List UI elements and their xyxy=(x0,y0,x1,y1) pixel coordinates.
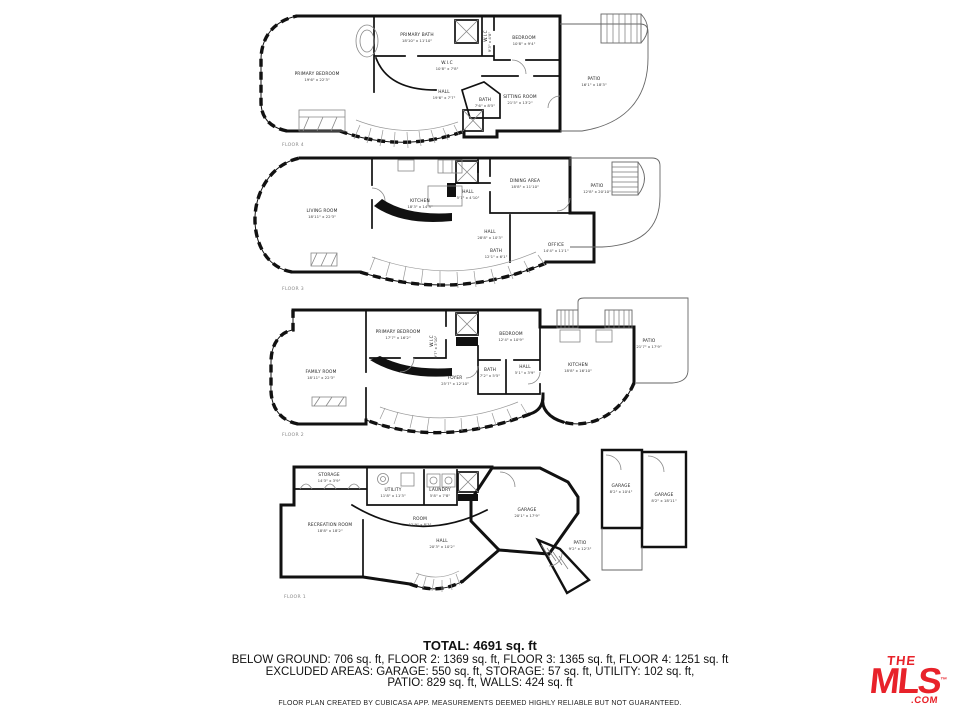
kitchen-window-wall xyxy=(563,383,634,424)
room-dims: 16'1" x 18'3" xyxy=(581,82,607,87)
room-dims: 25'7" x 12'10" xyxy=(441,381,469,386)
curved-hall-wall xyxy=(376,58,436,90)
dryer xyxy=(442,474,455,487)
total-area-text: TOTAL: 4691 sq. ft xyxy=(0,638,960,653)
room-dims: 18'8" x 11'10" xyxy=(511,184,539,189)
disclaimer-text: FLOOR PLAN CREATED BY CUBICASA APP. MEAS… xyxy=(0,700,960,707)
interior-walls xyxy=(374,16,560,92)
room-dims: 11'8" x 11'3" xyxy=(380,493,406,498)
room-dims: 18'11" x 22'3" xyxy=(308,214,336,219)
appliance xyxy=(398,160,414,171)
room-dims: 21'7" x 17'9" xyxy=(636,344,662,349)
room-dims: 14'3" x 3'9" xyxy=(318,478,341,483)
appliance xyxy=(596,330,612,342)
appliance xyxy=(438,160,462,173)
stair-inner-arc xyxy=(380,402,518,418)
floor-label: FLOOR 1 xyxy=(284,594,306,600)
floor-2-plan: FAMILY ROOM 18'11" x 22'3" PRIMARY BEDRO… xyxy=(271,298,688,438)
room-dims: 18'10" x 11'10" xyxy=(402,38,433,43)
floor-label: FLOOR 4 xyxy=(282,142,304,148)
room-dims: 5'7" x 4'10" xyxy=(457,195,480,200)
floor-label: FLOOR 3 xyxy=(282,286,304,292)
bay-window-wall xyxy=(261,16,297,131)
stair-inner-arc xyxy=(416,571,459,577)
patio-outline xyxy=(560,24,648,131)
floor-1-plan: STORAGE 14'3" x 3'9" UTILITY 11'8" x 11'… xyxy=(281,450,686,600)
stair-window-wall xyxy=(410,581,463,589)
floor-label: FLOOR 2 xyxy=(282,432,304,438)
room-dims: 17'7" x 16'2" xyxy=(385,335,411,340)
exterior-stairs xyxy=(557,310,578,328)
stair-inner-arc xyxy=(372,252,536,271)
shaft-wall xyxy=(458,494,478,501)
room-dims: 7'2" x 5'5" xyxy=(480,373,501,378)
room-dims: 9'7" x 3'10" xyxy=(433,335,438,358)
floorplan-canvas: PRIMARY BATH 18'10" x 11'10" PRIMARY BED… xyxy=(0,0,960,632)
stair-window-wall xyxy=(360,263,546,285)
room-dims: 20'1" x 17'9" xyxy=(514,513,540,518)
water-heater xyxy=(378,474,389,485)
excluded-areas-text-2: PATIO: 829 sq. ft, WALLS: 424 sq. ft xyxy=(0,678,960,690)
room-dims: 8'2" x 18'11" xyxy=(651,498,677,503)
room-dims: 18'8" x 16'10" xyxy=(564,368,592,373)
themls-logo: THE MLS™ .COM xyxy=(865,655,948,706)
stair-window-wall xyxy=(340,131,462,142)
room-dims: 8'2" x 10'4" xyxy=(610,489,633,494)
room-dims: 12'4" x 10'9" xyxy=(498,337,524,342)
room-dims: 10'8" x 7'8" xyxy=(436,66,459,71)
room-dims: 12'8" x 20'10" xyxy=(583,189,611,194)
room-dims: 14'4" x 11'1" xyxy=(543,248,569,253)
patio-outline xyxy=(602,528,642,570)
room-dims: 21'5" x 13'2" xyxy=(507,100,533,105)
stair-inner-arc xyxy=(356,120,458,131)
room-dims: 12'1" x 6'1" xyxy=(485,254,508,259)
stair-window-wall xyxy=(366,414,530,433)
room-dims: 18'11" x 22'3" xyxy=(307,375,335,380)
bed xyxy=(299,110,345,131)
washer xyxy=(427,474,440,487)
room-dims: 19'6" x 22'3" xyxy=(304,77,330,82)
room-dims: 7'6" x 8'5" xyxy=(475,103,496,108)
shaft-wall xyxy=(456,337,478,346)
furnace xyxy=(401,473,414,486)
room-dims: 18'3" x 14'3" xyxy=(407,204,433,209)
floor-3-plan: LIVING ROOM 18'11" x 22'3" KITCHEN 18'3"… xyxy=(255,158,660,292)
room-dims: 19'6" x 7'7" xyxy=(433,95,456,100)
room-dims: 20'3" x 10'2" xyxy=(429,544,455,549)
logo-mls-text: MLS™ xyxy=(868,667,947,695)
appliance xyxy=(560,330,580,342)
floor-areas-text: BELOW GROUND: 706 sq. ft, FLOOR 2: 1369 … xyxy=(0,655,960,667)
summary-block: TOTAL: 4691 sq. ft BELOW GROUND: 706 sq.… xyxy=(0,638,960,707)
room-dims: 10'8" x 9'4" xyxy=(513,41,536,46)
bay-window-wall xyxy=(255,158,300,272)
floor-4-plan: PRIMARY BATH 18'10" x 11'10" PRIMARY BED… xyxy=(261,14,648,148)
bay-window-wall xyxy=(271,310,298,424)
patio-outline xyxy=(570,158,660,247)
room-dims: 18'8" x 18'2" xyxy=(317,528,343,533)
room-dims: 28'8" x 10'3" xyxy=(477,235,503,240)
trademark-symbol: ™ xyxy=(940,677,948,684)
stair-treads xyxy=(380,404,527,432)
door-swings xyxy=(606,455,664,472)
room-dims: 9'2" x 12'3" xyxy=(569,546,592,551)
room-dims: 9'3" x 4'8" xyxy=(487,32,492,53)
room-dims: 5'1" x 3'9" xyxy=(515,370,536,375)
shaft-wall xyxy=(447,183,456,197)
floorplan-page: PRIMARY BATH 18'10" x 11'10" PRIMARY BED… xyxy=(0,0,960,720)
room-dims: 5'8" x 7'8" xyxy=(430,493,451,498)
room-dims: 12'9" x 8'3" xyxy=(409,522,432,527)
